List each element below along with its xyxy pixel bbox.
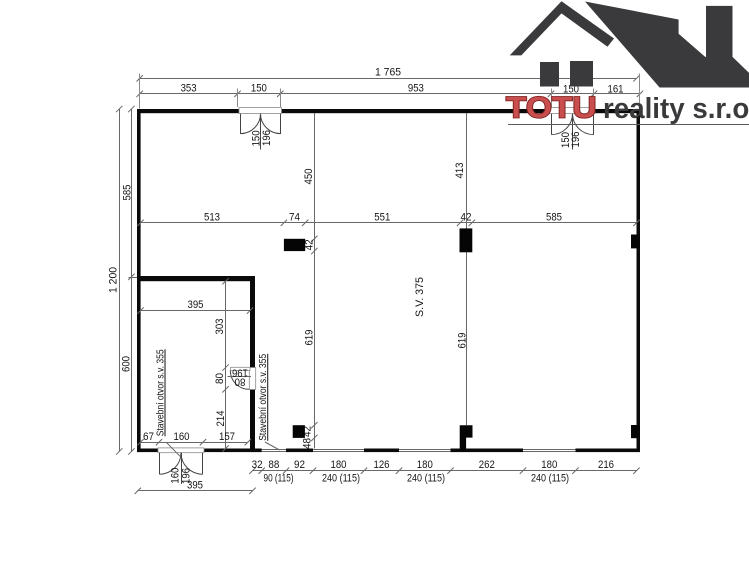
svg-text:395: 395 <box>187 479 203 491</box>
svg-text:395: 395 <box>188 299 204 311</box>
svg-text:353: 353 <box>181 82 197 94</box>
svg-text:180: 180 <box>541 459 557 471</box>
svg-text:196: 196 <box>570 131 582 147</box>
svg-text:240 (115): 240 (115) <box>407 473 445 485</box>
svg-text:180: 180 <box>417 459 433 471</box>
svg-text:reality s.r.o.: reality s.r.o. <box>603 93 749 125</box>
svg-text:88: 88 <box>268 459 279 471</box>
svg-text:90 (115): 90 (115) <box>264 473 294 485</box>
svg-text:513: 513 <box>204 211 220 223</box>
svg-text:1 200: 1 200 <box>108 267 120 293</box>
svg-text:150: 150 <box>251 82 267 94</box>
svg-text:1 765: 1 765 <box>375 67 401 79</box>
svg-text:585: 585 <box>546 211 562 223</box>
svg-text:180: 180 <box>331 459 347 471</box>
svg-text:Stavební otvor s.v. 355: Stavební otvor s.v. 355 <box>156 349 167 436</box>
svg-text:585: 585 <box>122 184 134 200</box>
svg-text:240 (115): 240 (115) <box>322 473 360 485</box>
svg-text:262: 262 <box>479 459 495 471</box>
svg-text:600: 600 <box>121 356 133 372</box>
svg-text:196: 196 <box>261 130 273 146</box>
svg-text:160: 160 <box>174 431 190 443</box>
svg-text:413: 413 <box>454 162 466 178</box>
svg-text:80: 80 <box>234 375 245 387</box>
svg-text:Stavební otvor s.v. 355: Stavební otvor s.v. 355 <box>258 354 269 441</box>
svg-text:80: 80 <box>214 373 226 384</box>
svg-text:619: 619 <box>303 329 315 345</box>
svg-text:216: 216 <box>598 459 614 471</box>
svg-text:214: 214 <box>215 410 227 426</box>
svg-text:32: 32 <box>252 459 263 471</box>
svg-text:126: 126 <box>374 459 390 471</box>
svg-text:TOTU: TOTU <box>506 92 597 125</box>
svg-text:240 (115): 240 (115) <box>531 473 569 485</box>
svg-text:619: 619 <box>457 332 469 348</box>
svg-text:S.V. 375: S.V. 375 <box>414 277 426 317</box>
svg-text:157: 157 <box>219 431 235 443</box>
svg-text:74: 74 <box>289 211 300 223</box>
svg-text:92: 92 <box>294 459 305 471</box>
svg-text:450: 450 <box>303 168 315 184</box>
svg-text:303: 303 <box>214 318 226 334</box>
svg-text:953: 953 <box>408 82 424 94</box>
svg-text:48: 48 <box>302 438 314 449</box>
svg-text:551: 551 <box>374 211 390 223</box>
svg-text:67: 67 <box>143 431 154 443</box>
